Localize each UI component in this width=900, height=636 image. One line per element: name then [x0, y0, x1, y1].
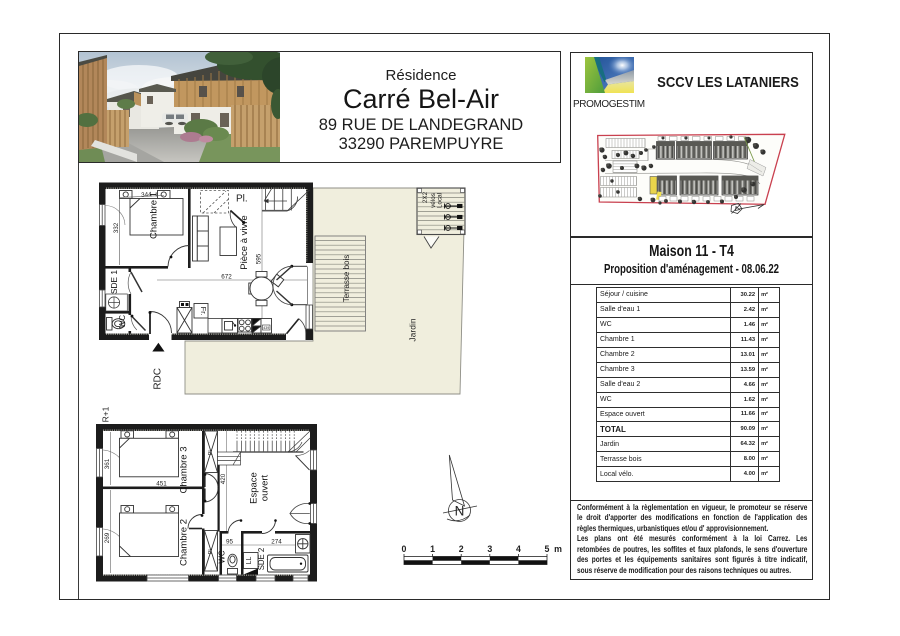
svg-text:595: 595 — [255, 253, 262, 264]
svg-text:451: 451 — [156, 480, 167, 487]
svg-text:SDE 2: SDE 2 — [257, 548, 266, 571]
svg-text:ouvert: ouvert — [260, 474, 271, 501]
svg-text:672: 672 — [221, 273, 232, 280]
svg-text:LL: LL — [246, 557, 253, 565]
svg-text:269: 269 — [104, 532, 111, 543]
svg-text:WC: WC — [218, 550, 227, 563]
svg-text:3: 3 — [487, 544, 492, 554]
svg-text:N: N — [455, 504, 465, 519]
svg-text:439: 439 — [263, 326, 269, 330]
svg-text:Chambre 1: Chambre 1 — [149, 192, 160, 239]
svg-text:2X2: 2X2 — [422, 191, 429, 203]
svg-text:2: 2 — [459, 544, 464, 554]
svg-text:R+1: R+1 — [101, 406, 111, 422]
svg-text:RDC: RDC — [153, 368, 164, 390]
svg-text:WC: WC — [118, 315, 127, 328]
svg-text:361: 361 — [104, 458, 111, 469]
svg-text:Jardin: Jardin — [408, 318, 418, 341]
svg-text:4: 4 — [516, 544, 521, 554]
svg-text:420: 420 — [220, 473, 227, 484]
svg-text:274: 274 — [271, 539, 282, 546]
svg-text:PL: PL — [208, 449, 214, 456]
svg-text:PL: PL — [208, 548, 214, 555]
svg-text:332: 332 — [113, 222, 120, 233]
svg-text:SDE 1: SDE 1 — [109, 270, 119, 294]
svg-text:Chambre 3: Chambre 3 — [179, 447, 190, 494]
svg-text:0: 0 — [402, 544, 407, 554]
svg-text:5: 5 — [545, 544, 550, 554]
svg-text:344: 344 — [141, 191, 152, 199]
svg-text:95: 95 — [226, 539, 234, 546]
svg-text:Pl.: Pl. — [236, 194, 248, 205]
svg-text:Espace: Espace — [249, 472, 260, 504]
svg-text:Local: Local — [437, 193, 444, 208]
svg-text:m: m — [554, 544, 562, 554]
svg-text:1: 1 — [430, 544, 435, 554]
svg-text:Terrasse bois: Terrasse bois — [342, 255, 351, 303]
svg-text:Fr.: Fr. — [199, 307, 208, 316]
